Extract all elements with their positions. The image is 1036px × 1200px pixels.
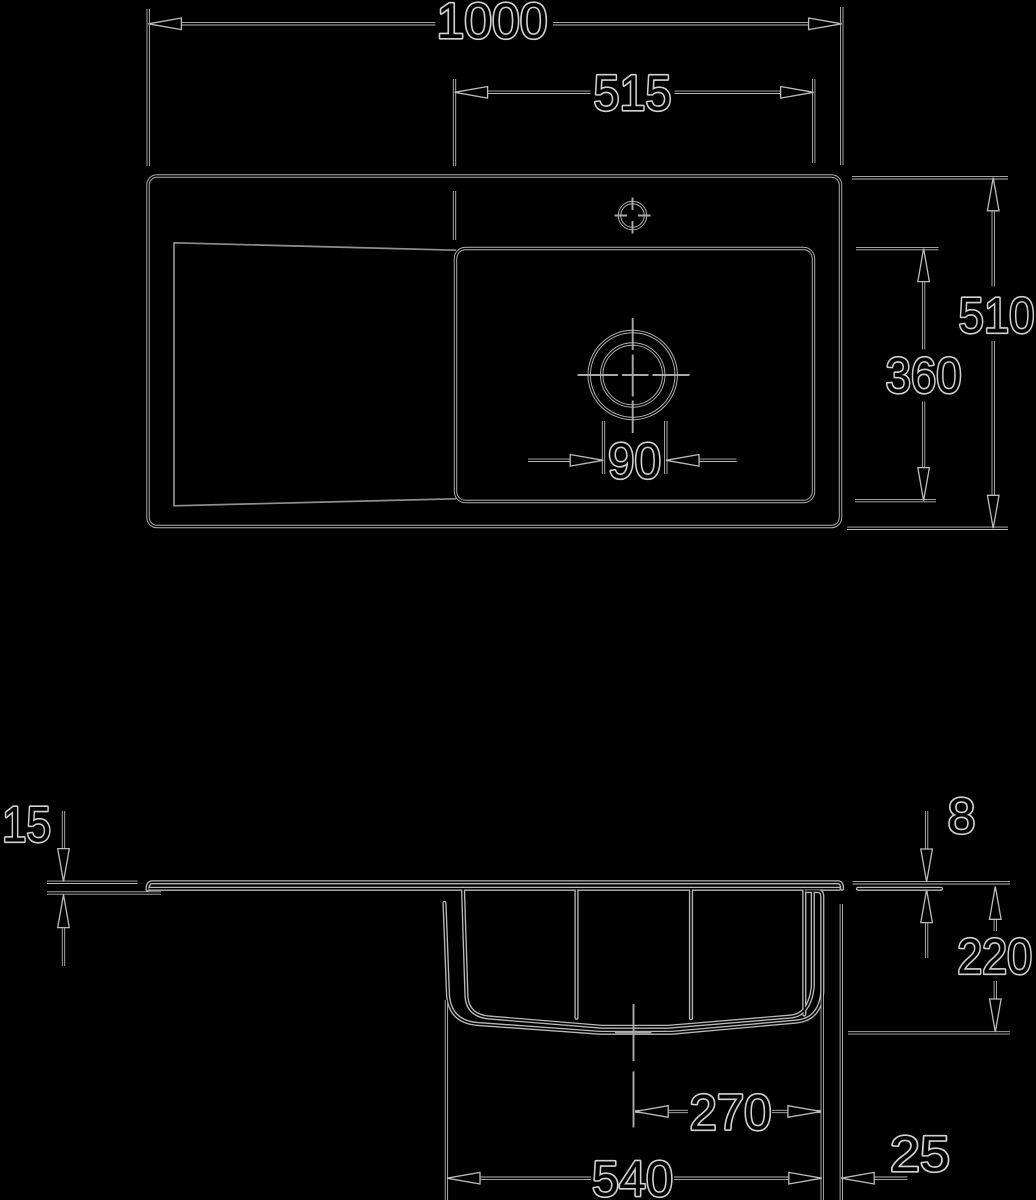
svg-text:8: 8 xyxy=(948,788,976,844)
svg-text:510: 510 xyxy=(959,288,1035,344)
svg-text:220: 220 xyxy=(957,929,1032,985)
svg-text:270: 270 xyxy=(690,1085,772,1141)
svg-text:15: 15 xyxy=(2,797,51,853)
svg-text:1000: 1000 xyxy=(437,0,548,49)
svg-text:540: 540 xyxy=(592,1151,673,1200)
svg-text:360: 360 xyxy=(886,348,962,404)
svg-text:90: 90 xyxy=(608,433,661,489)
svg-text:25: 25 xyxy=(890,1126,950,1182)
svg-text:515: 515 xyxy=(594,65,672,121)
